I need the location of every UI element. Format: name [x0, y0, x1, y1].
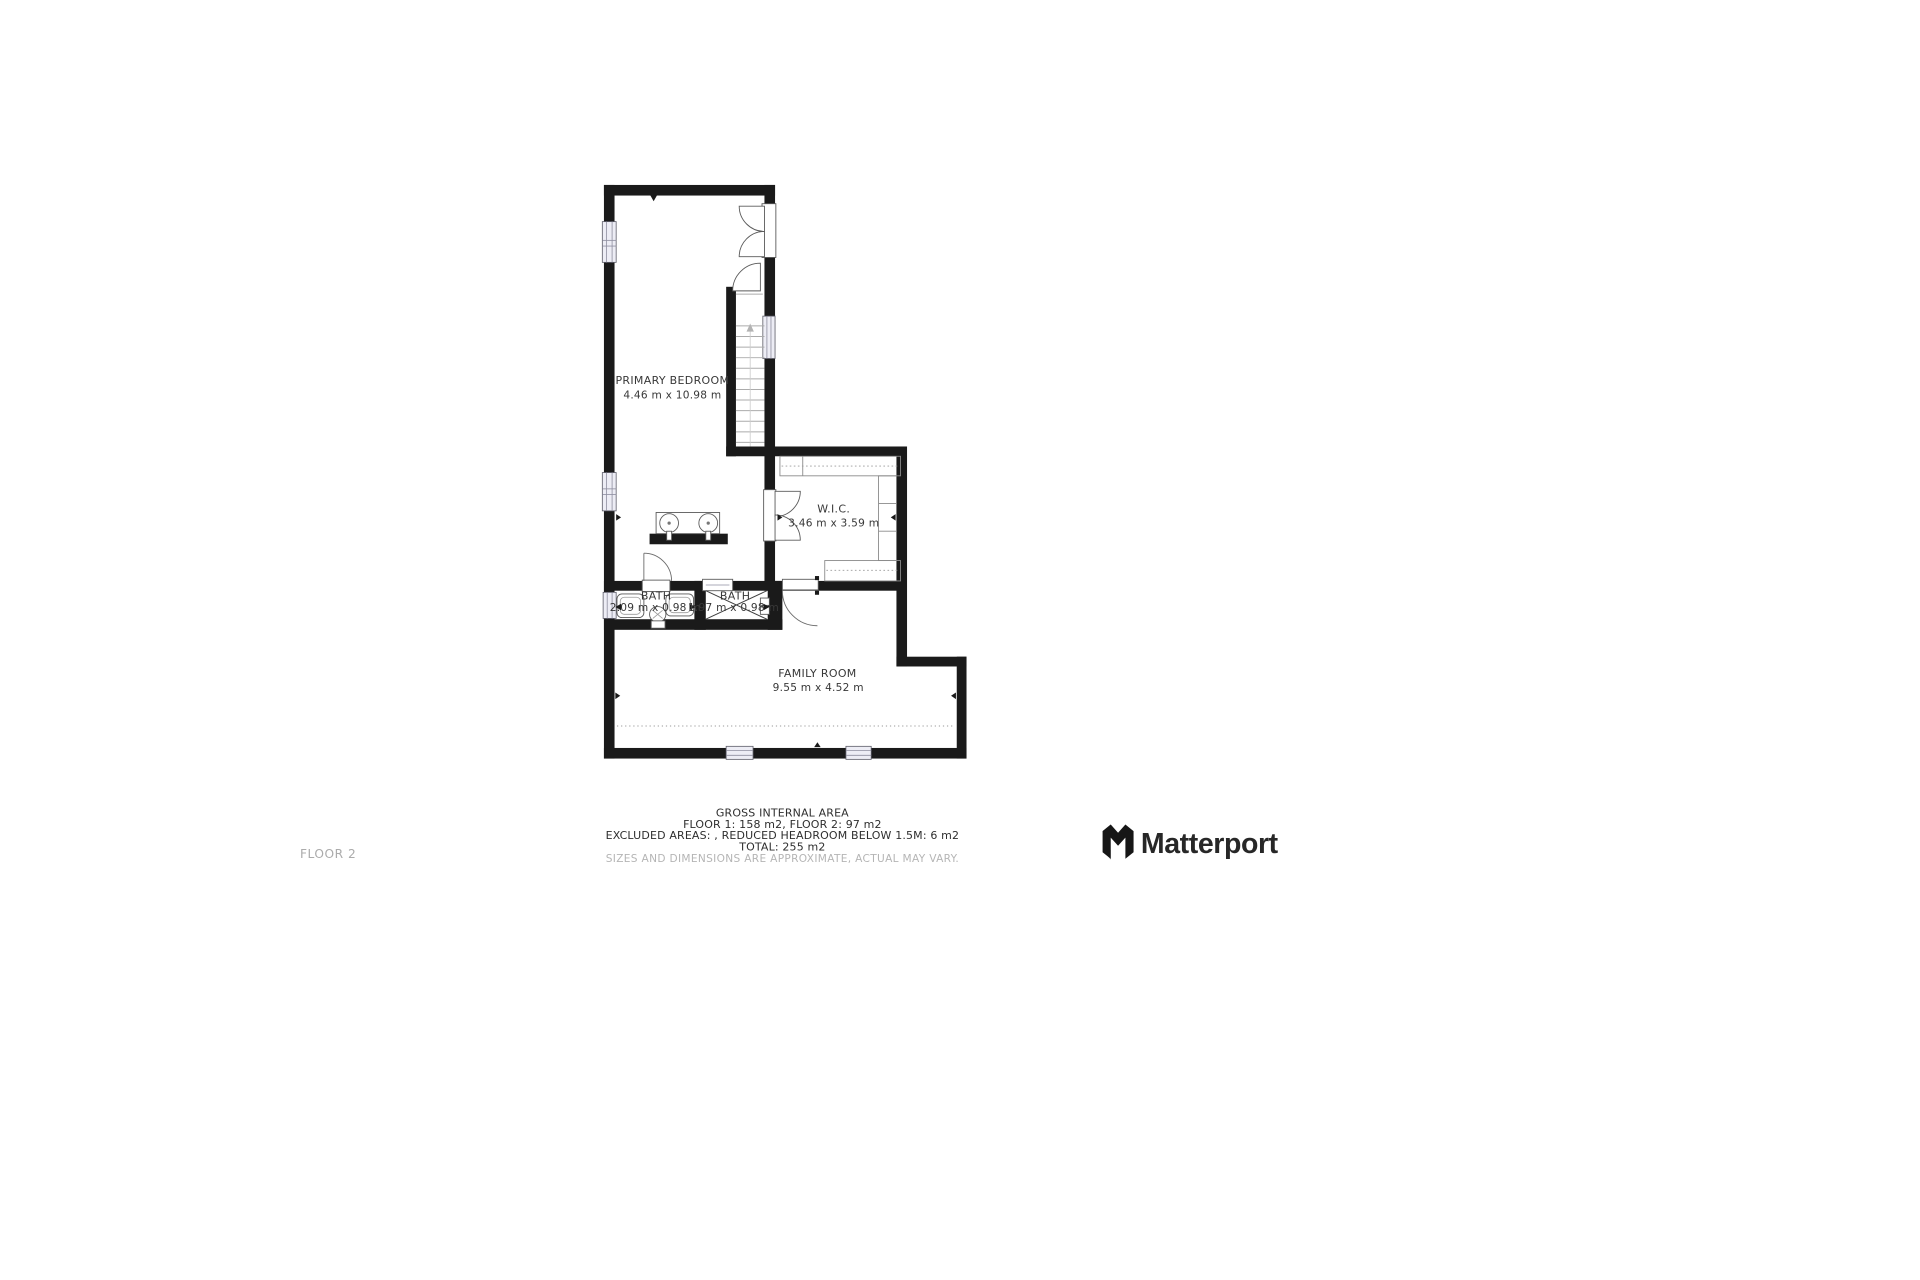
floorplan-page: PRIMARY BEDROOM 4.46 m x 10.98 m W.I.C. …: [0, 0, 1920, 1280]
stair-direction-arrow: [747, 323, 754, 331]
wic-dims: 3.46 m x 3.59 m: [788, 517, 879, 529]
matterport-wordmark: Matterport: [1141, 828, 1279, 860]
wic-double-door: [764, 490, 801, 541]
staircase: [736, 323, 765, 446]
wic-label: W.I.C.: [817, 502, 850, 515]
bath2-label: BATH: [720, 590, 750, 603]
hall-door: [782, 576, 819, 626]
wall-segment: [896, 446, 907, 666]
wall-segment: [604, 619, 782, 630]
wall-segment: [604, 185, 615, 759]
double-door: [739, 204, 776, 258]
footer-disclaimer: SIZES AND DIMENSIONS ARE APPROXIMATE, AC…: [606, 853, 959, 865]
matterport-m-icon: [1103, 825, 1134, 860]
bath1-door: [642, 553, 671, 591]
bath2-dims: 1.97 m x 0.98 m: [688, 602, 779, 614]
wall-segment: [957, 657, 967, 759]
family-room-dims: 9.55 m x 4.52 m: [773, 682, 864, 694]
family-room-label: FAMILY ROOM: [778, 667, 856, 680]
window: [726, 746, 753, 759]
window: [846, 746, 871, 759]
footer: GROSS INTERNAL AREA FLOOR 1: 158 m2, FLO…: [606, 806, 960, 865]
window: [763, 316, 775, 358]
primary-bedroom-label: PRIMARY BEDROOM: [615, 374, 729, 387]
wall-segment: [604, 185, 775, 196]
window: [602, 473, 616, 511]
floor-number-label: FLOOR 2: [300, 847, 356, 861]
wall-segment: [726, 287, 736, 456]
wall-segment: [604, 748, 967, 759]
wall-segment: [896, 657, 966, 667]
wall-segment: [726, 446, 906, 456]
vanity-double-sink: [650, 512, 728, 544]
window: [602, 222, 616, 263]
footer-total-area: TOTAL: 255 m2: [738, 841, 825, 854]
floorplan-canvas: PRIMARY BEDROOM 4.46 m x 10.98 m W.I.C. …: [0, 0, 1920, 1280]
stair-door: [733, 263, 763, 294]
matterport-logo: Matterport: [1103, 825, 1279, 861]
primary-bedroom-dims: 4.46 m x 10.98 m: [623, 389, 721, 401]
bath1-label: BATH: [641, 590, 671, 603]
